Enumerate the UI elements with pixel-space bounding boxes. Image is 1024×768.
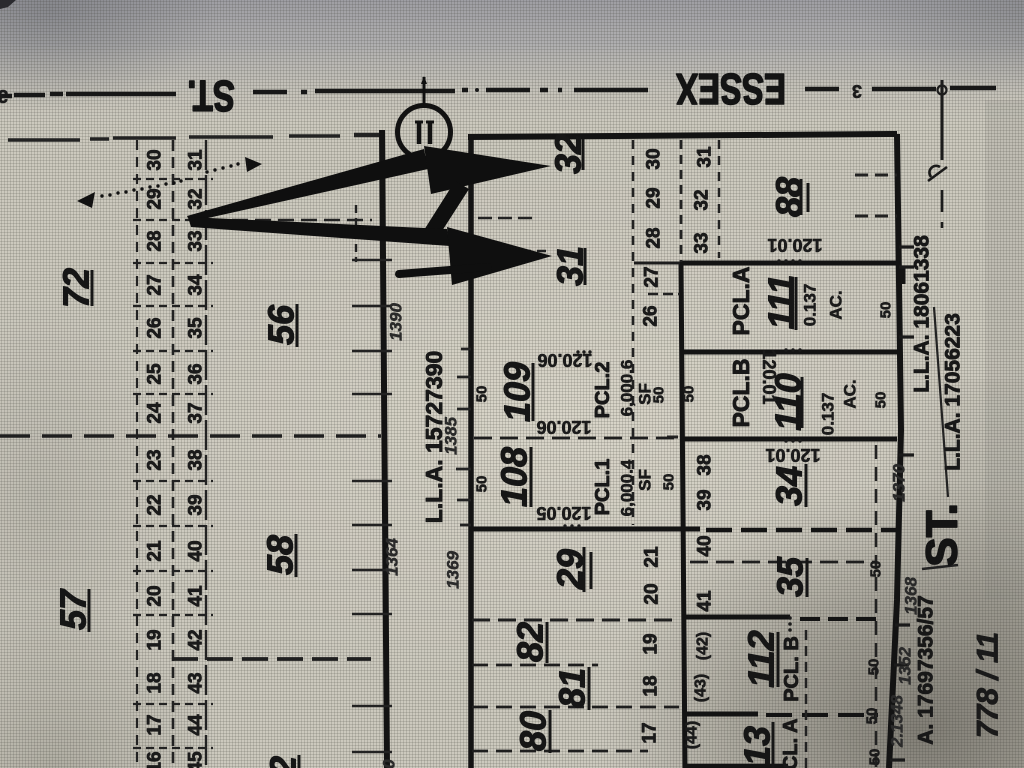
svg-text:112: 112	[741, 630, 782, 687]
svg-text:A. 17697356/57: A. 17697356/57	[915, 595, 938, 744]
svg-text:120.01: 120.01	[759, 349, 779, 404]
svg-text:1352: 1352	[896, 647, 915, 685]
svg-text:ST.: ST.	[918, 503, 967, 567]
svg-text:35: 35	[186, 317, 207, 339]
svg-text:50: 50	[474, 476, 491, 493]
svg-text:50: 50	[864, 708, 881, 725]
svg-text:29: 29	[145, 188, 166, 209]
svg-text:38: 38	[695, 454, 716, 475]
svg-text:38: 38	[186, 449, 207, 470]
svg-text:44: 44	[186, 714, 207, 736]
svg-text:109: 109	[497, 362, 538, 422]
svg-text:1370: 1370	[890, 464, 909, 502]
svg-text:57: 57	[53, 588, 94, 630]
svg-text:27: 27	[642, 266, 663, 287]
svg-text:21: 21	[145, 540, 166, 562]
svg-text:1385: 1385	[442, 417, 461, 455]
svg-text:18: 18	[641, 675, 662, 696]
svg-text:36: 36	[186, 363, 207, 384]
svg-text:(42): (42)	[695, 632, 712, 660]
svg-text:1390: 1390	[387, 303, 406, 341]
svg-text:50: 50	[873, 392, 890, 409]
svg-text:17: 17	[145, 714, 166, 735]
svg-text:33: 33	[692, 232, 713, 253]
svg-text:1368: 1368	[902, 577, 921, 615]
svg-text:37: 37	[186, 402, 207, 423]
svg-text:778 / 11: 778 / 11	[972, 632, 1005, 738]
svg-text:50: 50	[681, 386, 698, 403]
svg-text:58: 58	[260, 535, 301, 575]
svg-text:(43): (43)	[693, 674, 710, 702]
svg-text:32: 32	[186, 188, 207, 209]
svg-text:50: 50	[868, 561, 885, 578]
svg-text:6,000.6: 6,000.6	[618, 360, 637, 417]
svg-text:18: 18	[145, 672, 166, 693]
svg-text:50: 50	[651, 387, 668, 404]
svg-text:40: 40	[695, 535, 716, 556]
svg-text:56: 56	[261, 304, 302, 345]
svg-text:120.06: 120.06	[536, 417, 591, 437]
svg-text:33: 33	[186, 230, 207, 251]
svg-text:AC.: AC.	[827, 290, 846, 319]
svg-text:50: 50	[866, 659, 883, 676]
svg-text:2.1348: 2.1348	[888, 694, 907, 748]
svg-text:41: 41	[695, 590, 716, 612]
svg-text:PCL.2: PCL.2	[592, 362, 614, 419]
svg-text:13: 13	[737, 726, 778, 766]
svg-text:26: 26	[145, 317, 166, 338]
svg-text:72: 72	[56, 268, 97, 308]
svg-text:19: 19	[641, 633, 662, 654]
svg-text:19: 19	[145, 629, 166, 650]
svg-text:6,000.4: 6,000.4	[618, 459, 637, 516]
svg-text:35: 35	[770, 556, 811, 597]
svg-text:PCL.A: PCL.A	[728, 267, 754, 336]
svg-text:3: 3	[852, 81, 862, 101]
svg-text:50: 50	[474, 386, 491, 403]
svg-text:108: 108	[494, 447, 535, 507]
svg-text:21: 21	[642, 546, 663, 568]
svg-text:120.01: 120.01	[765, 445, 820, 465]
svg-text:30: 30	[644, 148, 665, 169]
svg-text:22: 22	[145, 494, 166, 515]
svg-text:40: 40	[186, 540, 207, 561]
svg-text:34: 34	[769, 466, 810, 506]
svg-text:17: 17	[640, 722, 661, 743]
svg-text:50: 50	[878, 302, 895, 319]
svg-text:31: 31	[186, 149, 207, 171]
svg-text:20: 20	[145, 585, 166, 606]
svg-text:24: 24	[145, 402, 166, 424]
svg-text:29: 29	[644, 187, 665, 208]
svg-text:28: 28	[644, 227, 665, 248]
svg-text:ST.: ST.	[187, 71, 235, 120]
svg-text:26: 26	[641, 305, 662, 326]
svg-text:39: 39	[186, 494, 207, 515]
svg-text:AC.: AC.	[841, 379, 860, 408]
svg-text:1369: 1369	[444, 551, 463, 589]
svg-text:0: 0	[380, 759, 399, 768]
svg-text:43: 43	[186, 672, 207, 693]
svg-text:1364: 1364	[383, 538, 402, 576]
svg-text:39: 39	[695, 489, 716, 510]
svg-text:ESSEX: ESSEX	[676, 64, 786, 113]
svg-text:88: 88	[769, 177, 810, 217]
svg-text:PCL. B: PCL. B	[781, 636, 803, 702]
svg-text:0.137: 0.137	[819, 393, 838, 436]
svg-text:PCL. A: PCL. A	[780, 719, 802, 768]
svg-text:25: 25	[145, 363, 166, 385]
svg-text:23: 23	[145, 449, 166, 470]
svg-text:41: 41	[186, 585, 207, 607]
svg-text:28: 28	[145, 230, 166, 251]
svg-text:32: 32	[692, 189, 713, 210]
svg-text:42: 42	[186, 629, 207, 650]
svg-text:81: 81	[552, 668, 593, 708]
svg-text:120.05: 120.05	[536, 503, 591, 523]
svg-text:120.01: 120.01	[767, 235, 822, 255]
svg-text:72: 72	[263, 756, 304, 768]
svg-text:16: 16	[145, 751, 166, 768]
svg-text:3: 3	[0, 86, 8, 106]
svg-text:31: 31	[695, 146, 716, 168]
svg-text:50: 50	[867, 749, 884, 766]
svg-text:(44): (44)	[684, 721, 701, 749]
svg-text:82: 82	[510, 622, 551, 662]
svg-text:30: 30	[145, 149, 166, 170]
svg-text:80: 80	[513, 711, 554, 751]
svg-text:PCL.B: PCL.B	[728, 359, 754, 428]
svg-text:45: 45	[186, 751, 207, 768]
svg-text:L.L.A. 18061338: L.L.A. 18061338	[911, 235, 934, 393]
svg-text:27: 27	[145, 274, 166, 295]
svg-text:50: 50	[661, 474, 678, 491]
svg-text:20: 20	[642, 583, 663, 604]
svg-text:L.L.A. 17056223: L.L.A. 17056223	[942, 313, 965, 471]
svg-text:PCL.1: PCL.1	[592, 459, 614, 516]
svg-text:0.137: 0.137	[801, 284, 820, 327]
svg-text:34: 34	[186, 274, 207, 296]
svg-text:SF: SF	[636, 469, 655, 491]
